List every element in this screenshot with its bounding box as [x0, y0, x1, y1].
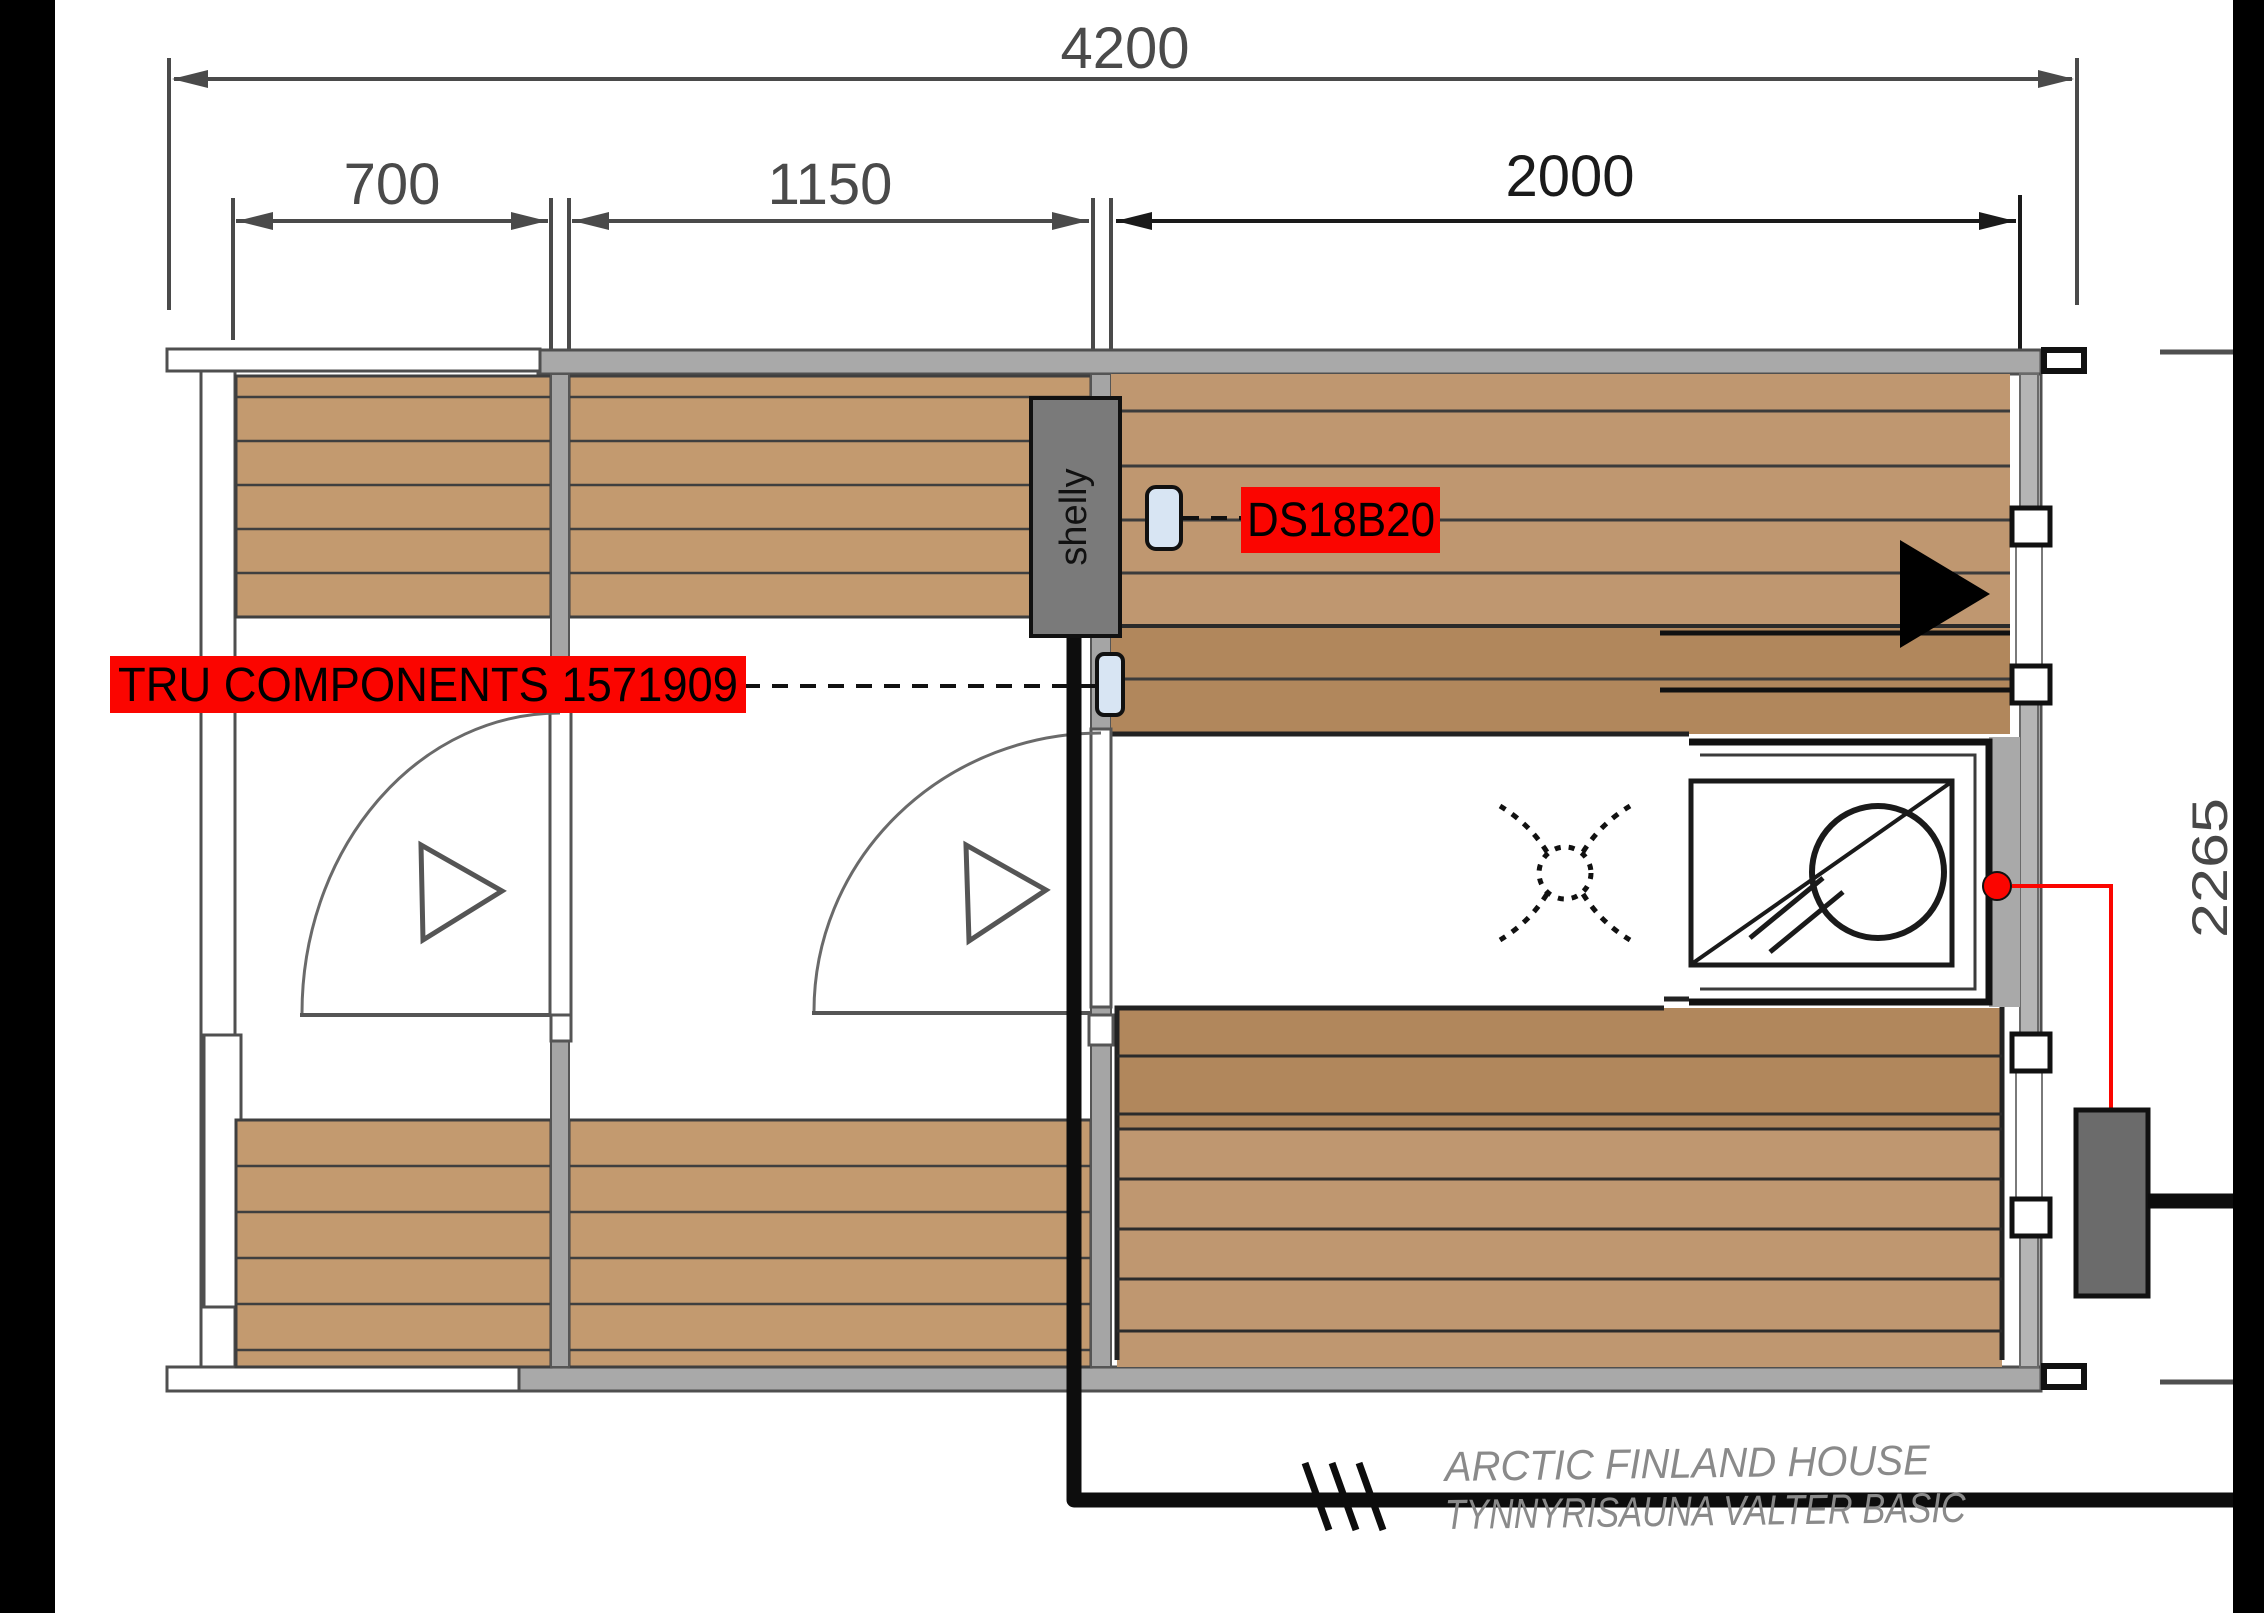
svg-text:2000: 2000 — [1505, 144, 1634, 209]
svg-text:2265: 2265 — [2182, 798, 2238, 938]
svg-text:ARCTIC FINLAND HOUSE: ARCTIC FINLAND HOUSE — [1442, 1436, 1931, 1490]
svg-text:700: 700 — [344, 152, 441, 217]
svg-text:shelly: shelly — [1053, 468, 1095, 565]
svg-text:TRU COMPONENTS 1571909: TRU COMPONENTS 1571909 — [118, 659, 738, 712]
svg-text:4200: 4200 — [1060, 16, 1189, 81]
svg-text:TYNNYRISAUNA VALTER BASIC: TYNNYRISAUNA VALTER BASIC — [1444, 1484, 1966, 1538]
svg-text:DS18B20: DS18B20 — [1247, 494, 1435, 547]
svg-text:1150: 1150 — [768, 152, 893, 217]
